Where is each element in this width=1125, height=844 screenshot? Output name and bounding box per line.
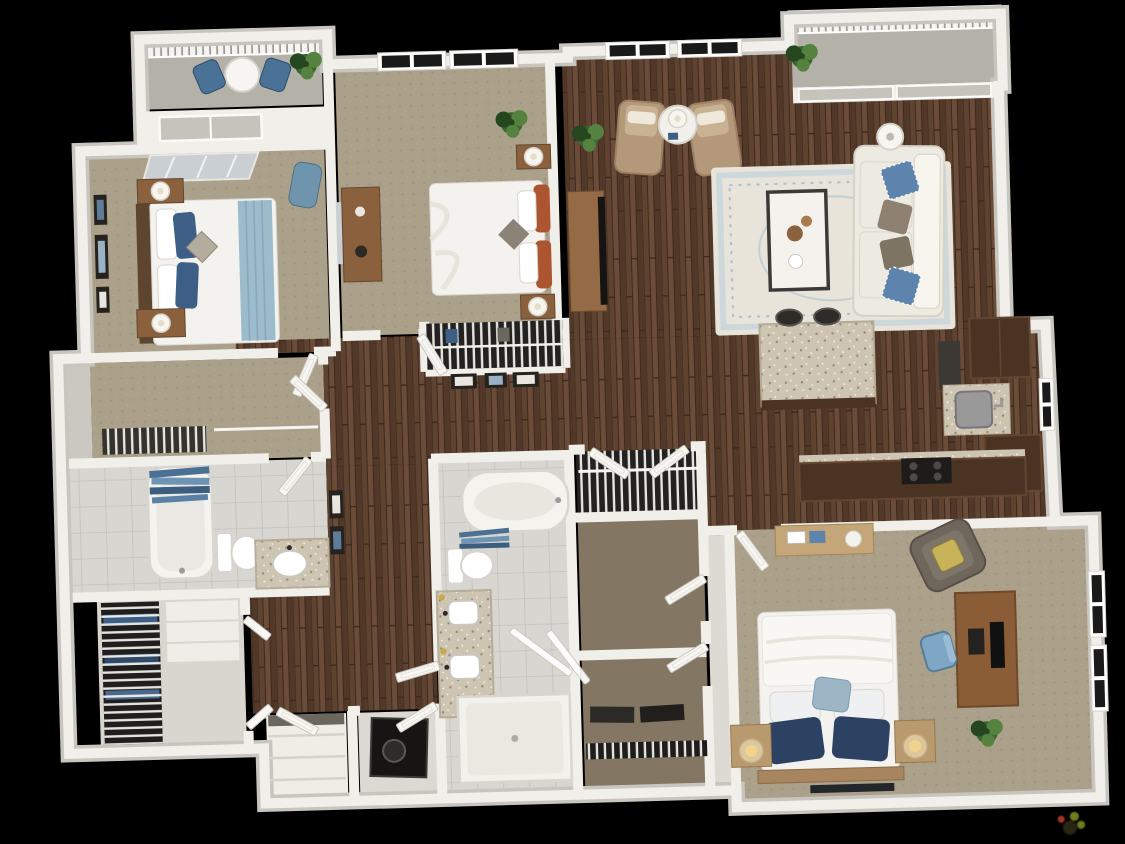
pillow-white — [518, 191, 537, 231]
wire-shelving — [101, 601, 163, 745]
hanging-clothes — [445, 329, 457, 343]
bathtub — [147, 466, 214, 580]
console-tray — [845, 531, 861, 547]
sofa — [853, 146, 944, 317]
art-print — [489, 376, 503, 385]
duvet-fold — [762, 613, 894, 687]
bar-stool — [776, 309, 802, 326]
bar-stool — [814, 308, 840, 325]
pillow-navy — [764, 716, 825, 765]
drum-lamp — [903, 734, 928, 759]
pillow-white — [519, 243, 538, 283]
glass-pane — [897, 84, 991, 99]
master-bed — [753, 609, 904, 795]
window-pane — [1091, 575, 1102, 602]
sink — [272, 550, 307, 577]
monitor — [990, 622, 1005, 668]
sliding-door-mullion — [210, 116, 211, 140]
console-books — [787, 531, 805, 543]
window-pane — [639, 44, 665, 56]
coffee-table — [768, 191, 829, 291]
refrigerator — [938, 341, 961, 390]
table-books — [668, 133, 678, 140]
shelf-unit — [165, 599, 241, 663]
console-books — [809, 531, 825, 543]
tv-console — [568, 191, 608, 312]
desk — [955, 591, 1018, 707]
window-pane — [1043, 406, 1052, 426]
glass-pane — [799, 87, 893, 102]
bistro-table — [225, 57, 260, 92]
window-pane — [1092, 606, 1103, 633]
accent-chair-left — [614, 100, 665, 175]
window-pane — [610, 45, 636, 57]
console-table — [775, 523, 874, 556]
table-lamp — [668, 109, 686, 127]
window-pane — [382, 55, 410, 68]
table-lamp — [529, 297, 547, 315]
hall-wood-mid — [570, 336, 701, 455]
hanging-clothes — [497, 327, 509, 341]
art-print — [98, 241, 106, 273]
window-pane — [454, 53, 482, 66]
storage-box — [640, 704, 685, 723]
cooktop — [901, 457, 952, 484]
window-pane — [681, 43, 707, 55]
closet-c-floor — [582, 656, 711, 792]
floor-plan-svg — [0, 0, 1125, 844]
accent-chair-right — [686, 99, 742, 177]
kitchen-bottom-run — [799, 449, 1026, 501]
window-pane — [711, 42, 737, 54]
floorplan-image — [0, 0, 1125, 844]
lumbar-pillow — [627, 111, 656, 125]
shower-curtain — [151, 477, 209, 484]
storage-box — [590, 707, 634, 723]
computer-tower — [968, 628, 985, 654]
pillow-taupe — [879, 235, 914, 270]
art-print — [99, 292, 106, 308]
table-tray — [788, 254, 802, 268]
window-pane — [1094, 680, 1105, 707]
garden-tub — [461, 470, 569, 533]
island-granite-top — [759, 321, 875, 406]
table-lamp — [151, 182, 169, 200]
window-pane — [1094, 649, 1105, 676]
table-lamp — [524, 147, 542, 165]
window-pane — [1042, 382, 1051, 402]
toilet-bowl — [461, 551, 494, 580]
pillow-light-blue — [812, 676, 852, 712]
watermark-logo — [1048, 808, 1092, 836]
sink — [449, 654, 480, 679]
window-pane — [414, 54, 442, 67]
bedroom-2-closet — [426, 320, 563, 370]
floor-plan — [49, 3, 1111, 826]
kitchen-window — [1039, 378, 1054, 430]
toilet-tank — [217, 533, 232, 571]
vanity-bath-2 — [255, 539, 329, 589]
art-print — [97, 200, 105, 220]
dresser — [341, 187, 382, 282]
art-print — [455, 376, 473, 385]
art-print — [332, 495, 340, 513]
pillow-navy — [831, 716, 890, 762]
drum-lamp — [739, 739, 764, 764]
wire-shelf — [586, 740, 707, 759]
pillow-blue — [175, 262, 199, 309]
table-lamp — [152, 314, 170, 332]
kitchen-sink — [955, 391, 992, 428]
sink-counter — [943, 384, 1010, 436]
bed-2 — [429, 180, 552, 295]
art-print — [333, 531, 341, 549]
appliance-drum — [383, 740, 406, 763]
art-print — [517, 375, 535, 384]
pillow-white — [157, 265, 178, 316]
window-pane — [486, 52, 514, 65]
wire-shelving — [102, 426, 207, 455]
sink — [448, 600, 479, 625]
